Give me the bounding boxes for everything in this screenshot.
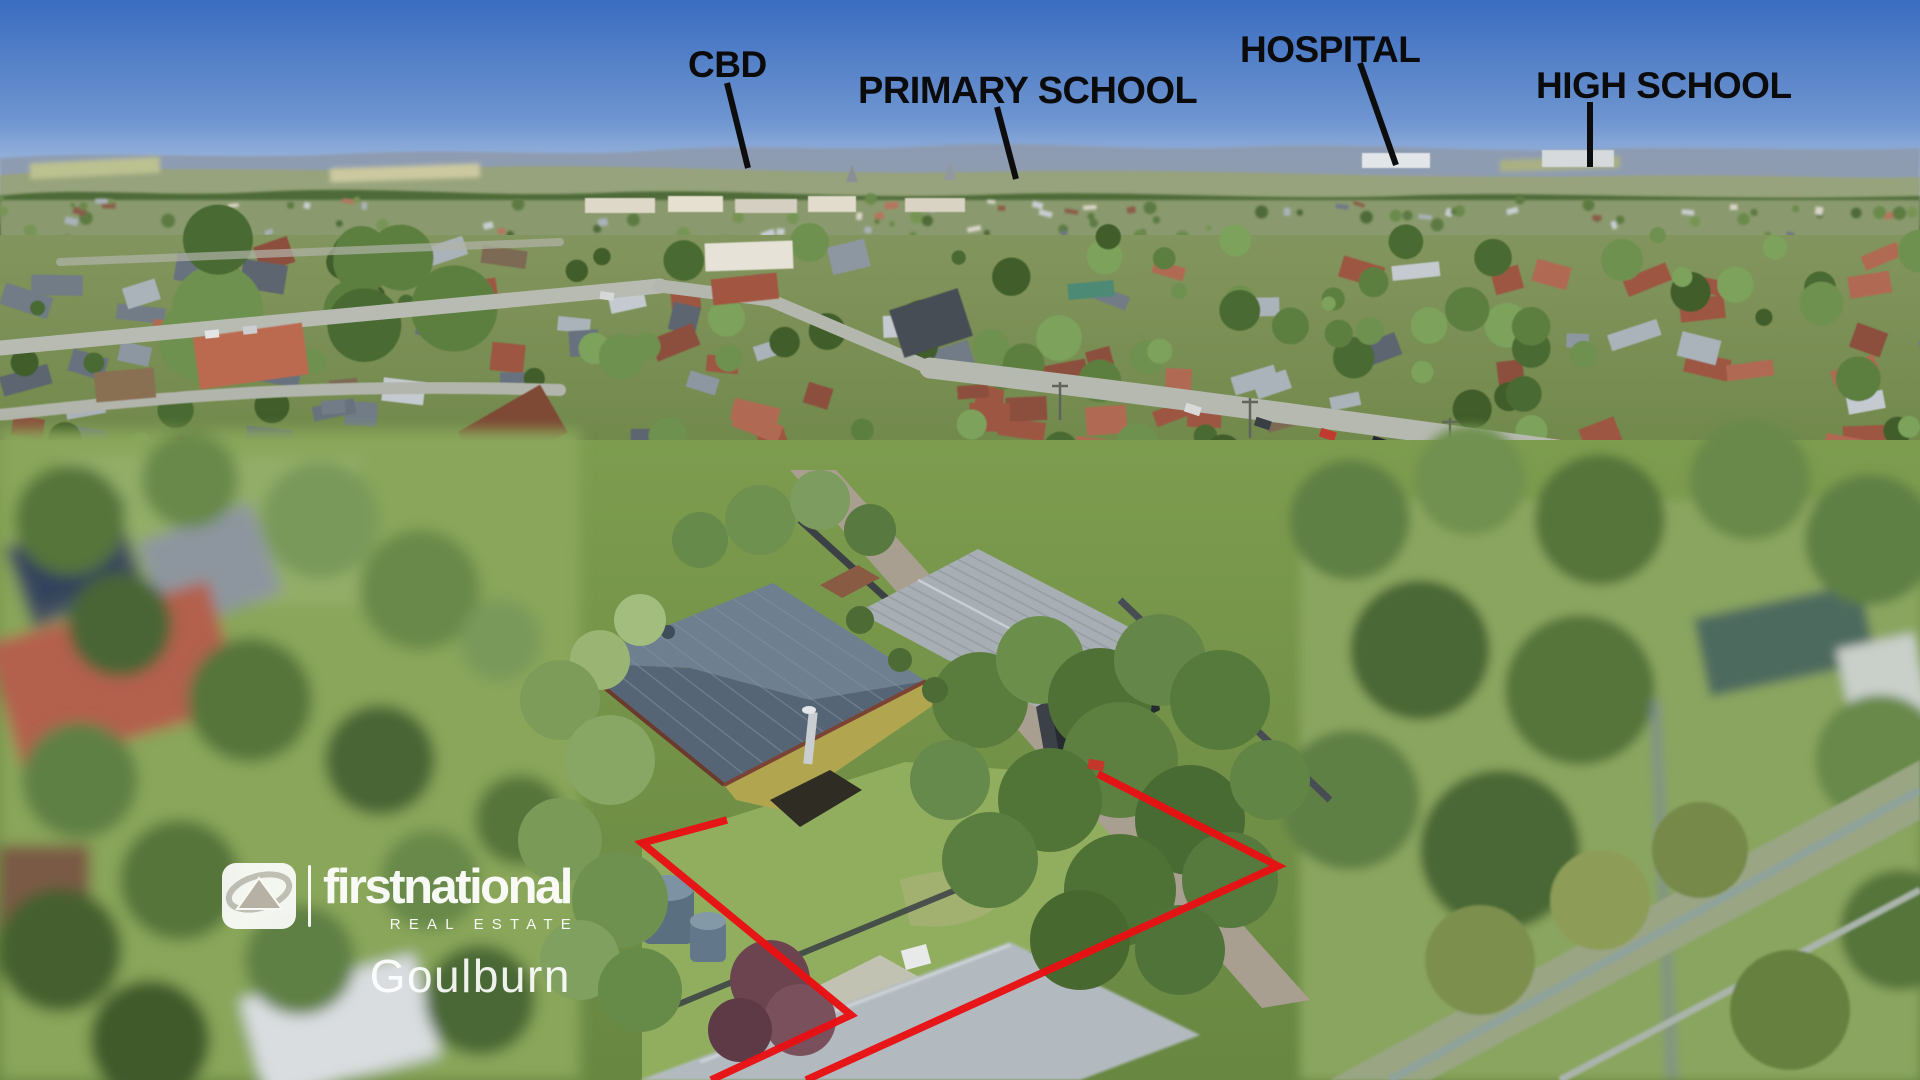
aerial-listing-photo: CBD PRIMARY SCHOOL HOSPITAL HIGH SCHOOL … [0, 0, 1920, 1080]
brand-tagline: REAL ESTATE [323, 916, 579, 933]
logo-divider [308, 865, 311, 927]
brand-name: firstnational [323, 863, 571, 912]
annotation-primary-school: PRIMARY SCHOOL [858, 70, 1197, 113]
annotation-high-school: HIGH SCHOOL [1536, 65, 1792, 107]
office-name: Goulburn [323, 949, 571, 1003]
annotation-cbd: CBD [688, 44, 767, 86]
agency-watermark: firstnational REAL ESTATE Goulburn [222, 863, 571, 1003]
firstnational-logo-icon [222, 863, 296, 929]
annotation-hospital: HOSPITAL [1240, 29, 1420, 71]
